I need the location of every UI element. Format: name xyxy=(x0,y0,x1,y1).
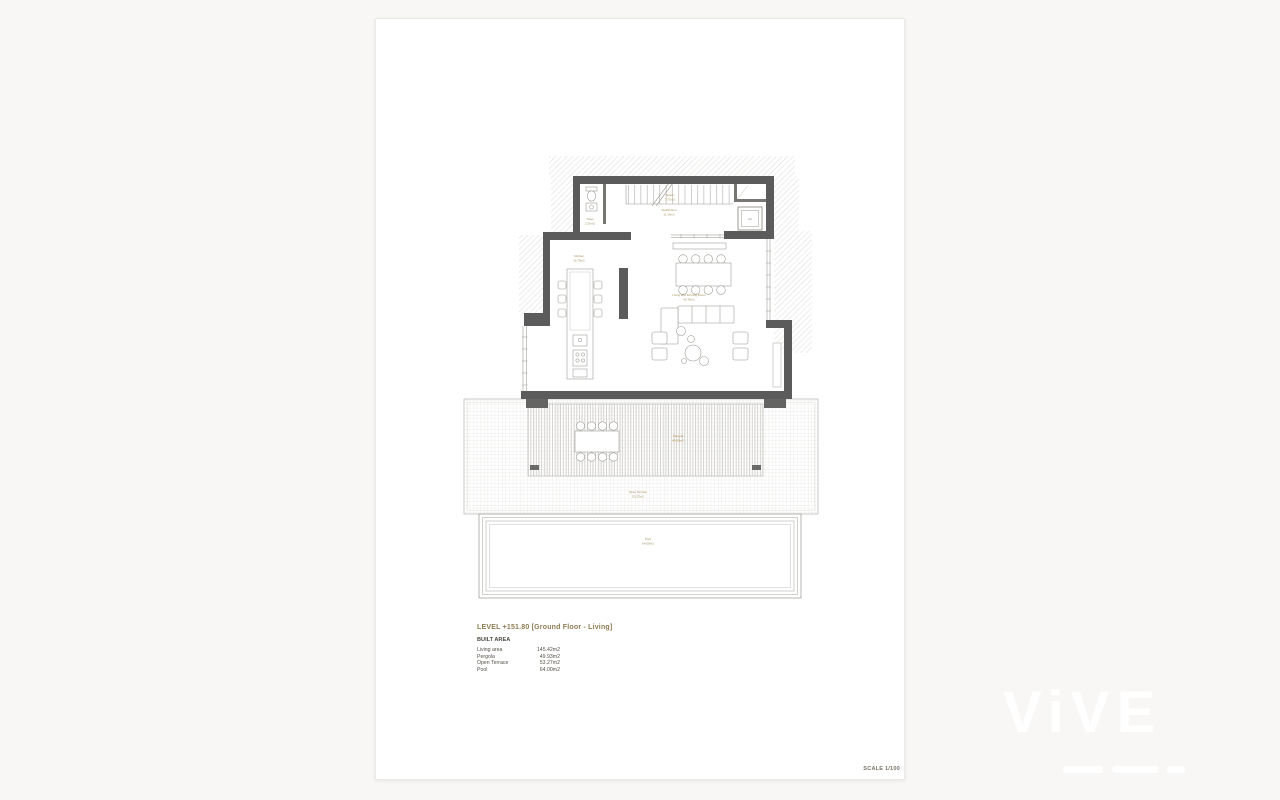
kitchen-island xyxy=(567,269,593,379)
built-area-table: Living area 145.42m2 Pergola 49.93m2 Ope… xyxy=(477,647,560,673)
row-value: 49.93m2 xyxy=(540,654,560,661)
lift-label: Lift xyxy=(748,217,752,221)
row-label: Living area xyxy=(477,647,502,654)
staircase xyxy=(626,183,733,206)
row-value: 145.42m2 xyxy=(537,647,560,654)
level-title: LEVEL +151.80 [Ground Floor - Living] xyxy=(477,624,612,631)
toilet-fixtures xyxy=(586,187,597,211)
fireplace-partition xyxy=(619,268,628,319)
pool-area: 64.00m2 xyxy=(642,542,654,546)
table-row: Open Terrace 53.27m2 xyxy=(477,660,560,667)
lift-shaft xyxy=(737,186,762,230)
vive-watermark-logo: ViVE xyxy=(1003,684,1162,742)
table-row: Pergola 49.93m2 xyxy=(477,654,560,661)
row-label: Open Terrace xyxy=(477,660,508,667)
row-value: 64.00m2 xyxy=(540,667,560,674)
kitchen-label: Kitchen xyxy=(574,254,584,258)
terrace-label: Open Terrace xyxy=(629,490,647,494)
stairs-area: 3.70m2 xyxy=(665,198,675,202)
built-area-heading: BUILT AREA xyxy=(477,637,510,643)
sofa-group xyxy=(652,306,748,366)
watermark-text-blob xyxy=(1167,766,1185,773)
distribution-label: Distribution xyxy=(661,208,676,212)
distribution-area: 11.14m2 xyxy=(663,213,675,217)
terrace-area: 53.27m2 xyxy=(632,495,644,499)
row-value: 53.27m2 xyxy=(540,660,560,667)
living-label: Living and Dinning Room xyxy=(672,293,706,297)
stairs-label: Stairs xyxy=(666,193,674,197)
desktop-canvas: Stairs 3.70m2 Toilet 2.50m2 Distribution… xyxy=(0,0,1280,800)
watermark-text-blob xyxy=(1112,766,1158,773)
row-label: Pool xyxy=(477,667,487,674)
window-bench xyxy=(773,343,781,387)
pool-label: Pool xyxy=(645,537,651,541)
toilet-label: Toilet xyxy=(586,217,593,221)
table-row: Pool 64.00m2 xyxy=(477,667,560,674)
row-label: Pergola xyxy=(477,654,495,661)
drawing-sheet: Stairs 3.70m2 Toilet 2.50m2 Distribution… xyxy=(375,18,905,780)
toilet-area: 2.50m2 xyxy=(585,222,595,226)
vive-watermark-subtitle xyxy=(1063,766,1185,773)
kitchen-area: 16.70m2 xyxy=(573,259,585,263)
pergola-label: Pergola xyxy=(673,434,684,438)
scale-note: SCALE 1/100 xyxy=(863,766,900,772)
watermark-text-blob xyxy=(1063,766,1103,773)
floor-plan-drawing: Stairs 3.70m2 Toilet 2.50m2 Distribution… xyxy=(376,19,906,781)
pergola-area: 49.93m2 xyxy=(672,439,684,443)
table-row: Living area 145.42m2 xyxy=(477,647,560,654)
pergola-canopy xyxy=(528,404,763,476)
pool-outline xyxy=(479,514,801,598)
dining-set xyxy=(673,243,731,294)
living-area: 42.76m2 xyxy=(683,298,695,302)
